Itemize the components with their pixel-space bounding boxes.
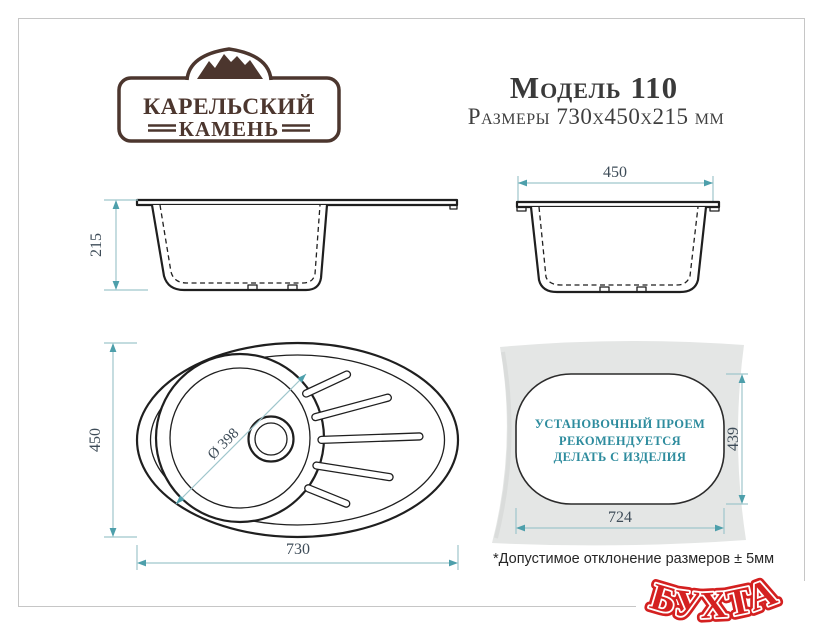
technical-drawing [0,0,824,640]
cutout-note-line2: РЕКОМЕНДУЕТСЯ [525,433,715,450]
top-width-label: 730 [274,541,322,559]
buhta-watermark-logo: БУХТА БУХТА [638,576,790,640]
front-width-label: 450 [591,164,639,182]
cutout-note: УСТАНОВОЧНЫЙ ПРОЕМ РЕКОМЕНДУЕТСЯ ДЕЛАТЬ … [525,416,715,466]
cutout-note-line3: ДЕЛАТЬ С ИЗДЕЛИЯ [525,449,715,466]
side-height-dimension [104,200,148,290]
tolerance-footnote: *Допустимое отклонение размеров ± 5мм [493,551,774,567]
svg-text:БУХТА: БУХТА [646,576,783,627]
watermark-text: БУХТА [646,576,783,627]
side-height-label: 215 [88,225,106,265]
top-height-dimension [104,343,137,537]
cutout-note-line1: УСТАНОВОЧНЫЙ ПРОЕМ [525,416,715,433]
diagram-page: КАРЕЛЬСКИЙ КАМЕНЬ Модель 110 Размеры 730… [0,0,824,640]
cutout-height-label: 439 [725,419,743,459]
side-view [104,200,457,290]
front-view [517,176,719,292]
top-height-label: 450 [87,420,105,460]
top-view [104,343,458,570]
cutout-width-label: 724 [596,509,644,527]
